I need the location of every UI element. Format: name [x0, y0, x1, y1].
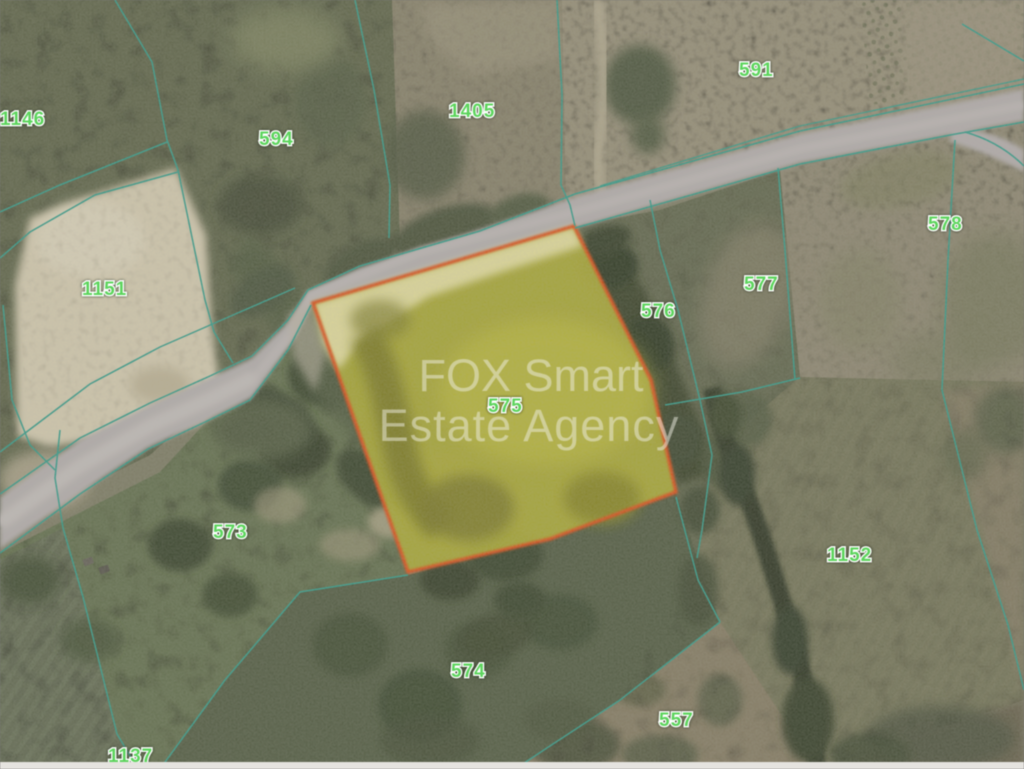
svg-text:578: 578: [928, 214, 963, 235]
svg-text:1151: 1151: [82, 279, 127, 300]
svg-text:1146: 1146: [0, 109, 45, 130]
svg-text:Estate Agency: Estate Agency: [379, 400, 680, 451]
svg-text:1152: 1152: [827, 545, 872, 566]
svg-text:576: 576: [641, 301, 676, 322]
svg-text:591: 591: [739, 60, 774, 81]
svg-text:574: 574: [451, 661, 486, 682]
svg-text:557: 557: [659, 710, 694, 731]
svg-text:577: 577: [744, 274, 779, 295]
svg-text:FOX Smart: FOX Smart: [418, 350, 644, 401]
svg-text:573: 573: [213, 522, 248, 543]
svg-text:594: 594: [259, 129, 294, 150]
svg-text:1405: 1405: [449, 101, 495, 122]
